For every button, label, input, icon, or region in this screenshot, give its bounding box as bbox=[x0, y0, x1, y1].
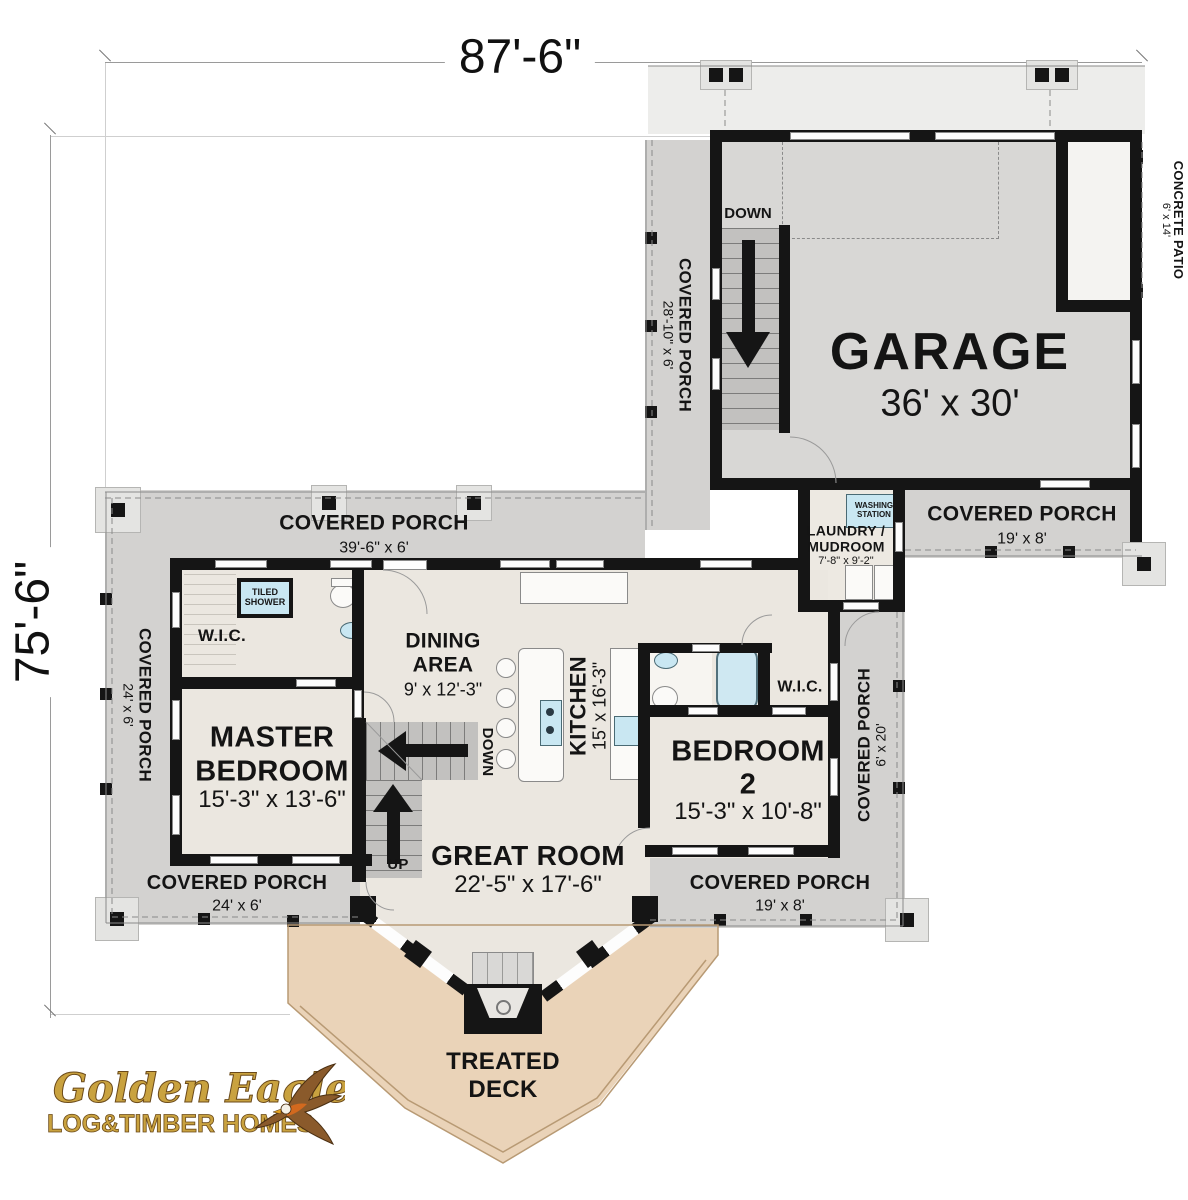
porch-garage-front-name: COVERED PORCH bbox=[927, 504, 1116, 527]
porch-dims: 28'-10" x 6' bbox=[660, 200, 675, 470]
porch-post bbox=[198, 913, 210, 925]
prow-corner-post bbox=[350, 896, 376, 922]
fireplace-flue bbox=[496, 1000, 511, 1015]
porch-name: COVERED PORCH bbox=[855, 625, 873, 865]
bathtub bbox=[716, 647, 758, 711]
bedroom2-dims: 15'-3" x 10'-8" bbox=[674, 799, 822, 825]
house-east-wall bbox=[828, 612, 840, 858]
garage-west-wall bbox=[710, 142, 722, 490]
garage-stair-wall bbox=[779, 225, 790, 433]
porch-post bbox=[800, 914, 812, 926]
patio-post bbox=[1133, 284, 1143, 298]
window bbox=[700, 560, 752, 568]
porch-dims: 6' x 20' bbox=[874, 625, 889, 865]
porch-corner-post bbox=[95, 487, 141, 533]
porch-top-name: COVERED PORCH bbox=[279, 513, 468, 536]
burner bbox=[546, 726, 554, 734]
window bbox=[172, 592, 180, 628]
porch-post bbox=[985, 546, 997, 558]
sink-bath2 bbox=[654, 652, 678, 669]
up-arrow-head bbox=[373, 784, 413, 812]
door-opening bbox=[354, 690, 362, 718]
logo-tagline: LOG&TIMBER HOMES bbox=[47, 1110, 314, 1138]
porch-top-dims: 39'-6" x 6' bbox=[339, 539, 409, 556]
great-room-dims: 22'-5" x 17'-6" bbox=[454, 872, 602, 898]
driveway-post bbox=[1026, 60, 1078, 90]
tiled-shower-line2: SHOWER bbox=[245, 598, 286, 608]
porch-corner-post bbox=[95, 897, 139, 941]
window bbox=[1132, 340, 1140, 384]
porch-post bbox=[645, 232, 657, 244]
down-arrow-head bbox=[726, 332, 770, 368]
great-room-name: GREAT ROOM bbox=[431, 841, 625, 871]
dim-tick bbox=[99, 49, 111, 61]
garage-dims: 36' x 30' bbox=[880, 383, 1019, 424]
dim-tick bbox=[44, 122, 56, 134]
porch-post bbox=[893, 680, 905, 692]
bath2-south-wall bbox=[650, 705, 840, 717]
stair-west-wall bbox=[352, 718, 366, 882]
tiled-shower: TILED SHOWER bbox=[237, 578, 293, 618]
laundry-dims: 7'-8" x 9'-2" bbox=[818, 556, 873, 568]
patio-dims: 6' x 14' bbox=[1159, 140, 1171, 300]
window bbox=[712, 358, 720, 390]
window bbox=[830, 758, 838, 796]
master-bedroom-line1: MASTER bbox=[210, 722, 334, 753]
porch-east-wall bbox=[1130, 490, 1142, 546]
porch-name: COVERED PORCH bbox=[135, 580, 153, 830]
master-closet-shelving bbox=[184, 574, 236, 674]
porch-post bbox=[645, 320, 657, 332]
down-text: DOWN bbox=[479, 728, 495, 777]
deck-label-line1: TREATED bbox=[446, 1049, 560, 1075]
garage-stairs-down-label: DOWN bbox=[724, 206, 772, 222]
garage-door-overhead-dashed bbox=[782, 142, 999, 239]
laundry-label-line1: LAUNDRY / bbox=[807, 523, 885, 538]
door-opening bbox=[692, 644, 720, 652]
master-bedroom-dims: 15'-3" x 13'-6" bbox=[198, 787, 346, 813]
porch-bottom-right-dims: 19' x 8' bbox=[755, 897, 805, 914]
stool bbox=[496, 749, 516, 769]
deck-label-line2: DECK bbox=[468, 1077, 537, 1103]
porch-post bbox=[100, 688, 112, 700]
patio-south-wall bbox=[1056, 300, 1142, 312]
door-opening bbox=[688, 707, 718, 715]
window bbox=[1132, 424, 1140, 468]
down-arrow-head bbox=[378, 731, 406, 771]
porch-post bbox=[714, 914, 726, 926]
porch-post bbox=[893, 782, 905, 794]
porch-bottom-left-dims: 24' x 6' bbox=[212, 897, 262, 914]
extension-line-bottom bbox=[50, 1014, 290, 1015]
porch-post bbox=[100, 593, 112, 605]
patio-west-wall bbox=[1056, 142, 1068, 312]
down-arrow-shaft bbox=[402, 744, 468, 757]
washer bbox=[845, 565, 873, 600]
burner bbox=[546, 708, 554, 716]
porch-dims: 24' x 6' bbox=[120, 580, 135, 830]
dining-dims: 9' x 12'-3" bbox=[404, 680, 482, 699]
width-dimension-label: 87'-6" bbox=[445, 30, 595, 85]
dining-line1: DINING bbox=[405, 631, 480, 654]
window bbox=[556, 560, 604, 568]
master-bedroom-line2: BEDROOM bbox=[195, 756, 349, 787]
window bbox=[1040, 480, 1090, 488]
window bbox=[500, 560, 550, 568]
extension-line-garage-top bbox=[50, 136, 710, 137]
golden-eagle-logo: Golden Eagle LOG&TIMBER HOMES bbox=[35, 1056, 345, 1156]
garage-label: GARAGE bbox=[830, 324, 1070, 380]
dim-tick bbox=[1136, 49, 1148, 61]
bedroom2-line1: BEDROOM bbox=[671, 736, 825, 767]
stool bbox=[496, 658, 516, 678]
porch-post bbox=[645, 406, 657, 418]
front-door bbox=[383, 560, 427, 570]
dining-line2: AREA bbox=[413, 655, 474, 678]
cooktop bbox=[540, 700, 562, 746]
patio-post bbox=[1133, 150, 1143, 164]
covered-concrete-patio bbox=[1068, 142, 1130, 300]
bedroom2-line2: 2 bbox=[740, 769, 756, 800]
window bbox=[292, 856, 340, 864]
wic-bedroom2-label: W.I.C. bbox=[777, 678, 822, 695]
porch-bottom-left-name: COVERED PORCH bbox=[147, 873, 328, 895]
down-arrow-shaft bbox=[742, 240, 755, 335]
porch-garage-front-dims: 19' x 8' bbox=[997, 530, 1047, 547]
porch-name: COVERED PORCH bbox=[675, 200, 693, 470]
window bbox=[748, 847, 794, 855]
stool bbox=[496, 688, 516, 708]
hall-wall bbox=[638, 643, 650, 828]
patio-label-line2: CONCRETE PATIO bbox=[1171, 140, 1185, 300]
driveway-post bbox=[700, 60, 752, 90]
porch-post bbox=[287, 915, 299, 927]
porch-post bbox=[1063, 546, 1075, 558]
window bbox=[712, 268, 720, 300]
kitchen-dims: 15' x 16'-3" bbox=[590, 606, 609, 806]
master-south-wall bbox=[170, 854, 372, 866]
window bbox=[172, 700, 180, 740]
wic-master-label: W.I.C. bbox=[198, 627, 246, 645]
center-up-label: UP bbox=[387, 857, 408, 873]
height-dimension-label: 75'-6" bbox=[6, 547, 61, 697]
stool bbox=[496, 718, 516, 738]
top-dimension-line bbox=[105, 62, 1142, 63]
porch-post bbox=[100, 783, 112, 795]
prow-corner-post bbox=[632, 896, 658, 922]
extension-line-left bbox=[105, 62, 106, 490]
porch-corner-post bbox=[885, 898, 929, 942]
floor-plan: 87'-6" 75'-6" GARAGE 36' x 30' COVERED C… bbox=[0, 0, 1188, 1200]
garage-door-opening bbox=[935, 132, 1055, 140]
porch-corner-post bbox=[1122, 542, 1166, 586]
window bbox=[830, 663, 838, 701]
porch-bottom-right-name: COVERED PORCH bbox=[690, 873, 871, 895]
door-opening bbox=[296, 679, 336, 687]
window bbox=[215, 560, 267, 568]
mudroom-door bbox=[843, 602, 879, 610]
window bbox=[210, 856, 258, 864]
door-opening bbox=[772, 707, 806, 715]
tub-wall bbox=[758, 643, 770, 717]
window bbox=[330, 560, 372, 568]
garage-door-opening bbox=[790, 132, 910, 140]
kitchen-counter-north bbox=[520, 572, 628, 604]
window bbox=[172, 795, 180, 835]
laundry-label-line2: MUDROOM bbox=[807, 539, 885, 554]
washing-station-line2: STATION bbox=[857, 511, 891, 520]
garage-north-wall bbox=[710, 130, 1142, 142]
mudroom-door-to-porch bbox=[895, 522, 903, 552]
kitchen-name: KITCHEN bbox=[566, 606, 590, 806]
window bbox=[672, 847, 718, 855]
hearth bbox=[472, 952, 534, 986]
